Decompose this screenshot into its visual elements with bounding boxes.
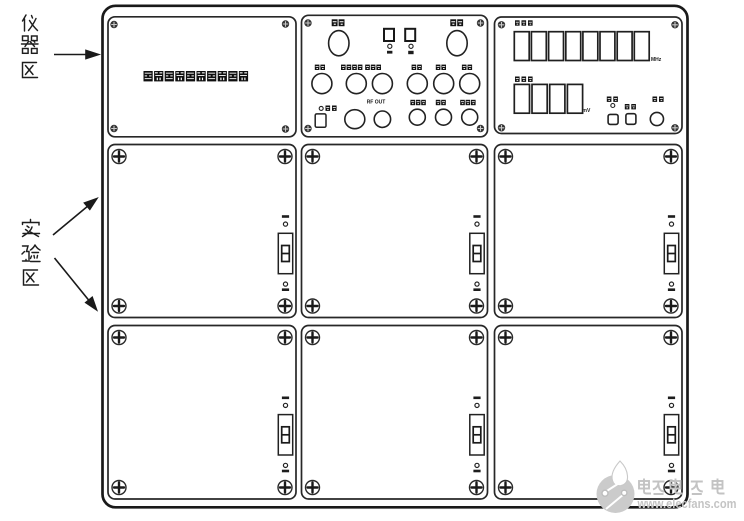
svg-text:mV: mV (583, 108, 591, 114)
svg-text:MHz: MHz (651, 57, 662, 63)
svg-text:RF OUT: RF OUT (367, 99, 386, 105)
svg-text:www.elecfans.com: www.elecfans.com (637, 496, 737, 511)
